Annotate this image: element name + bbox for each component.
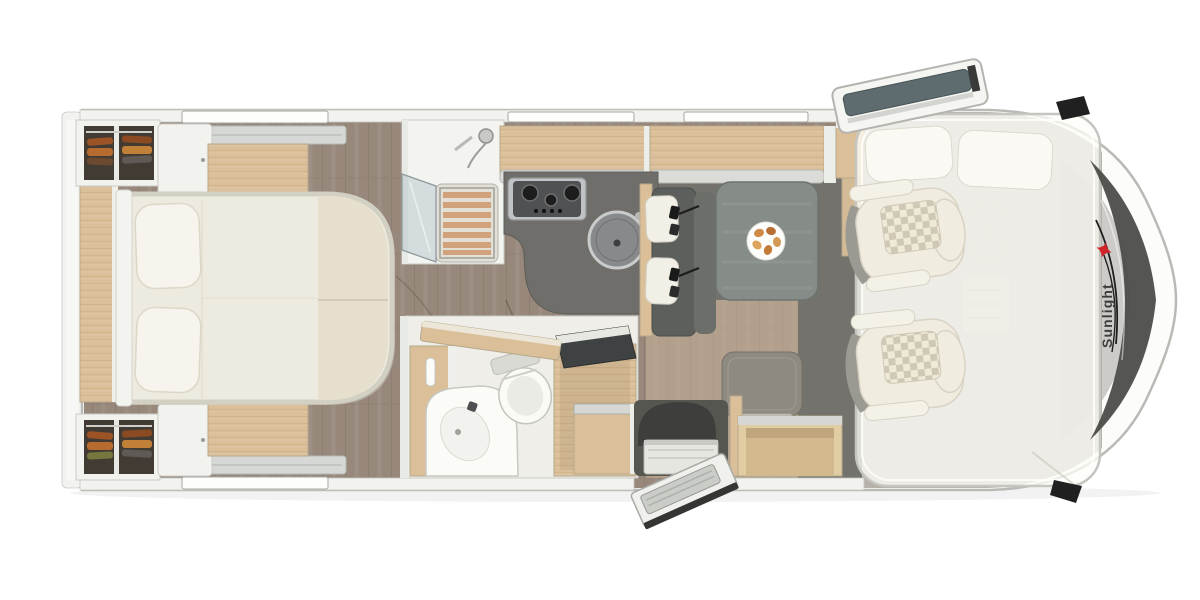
dinette-table bbox=[716, 182, 818, 300]
plate-with-croissants bbox=[747, 222, 785, 260]
shower-room bbox=[402, 120, 504, 264]
travel-bench bbox=[640, 184, 716, 336]
gas-hob bbox=[508, 178, 586, 220]
drop-down-bed-overlay bbox=[856, 114, 1100, 486]
bottom-wall-right bbox=[728, 478, 864, 490]
toilet-room bbox=[400, 316, 638, 478]
island-bed bbox=[116, 190, 395, 406]
bedroom-skylight-slot-top bbox=[182, 111, 328, 123]
bed-pillow bbox=[864, 125, 953, 183]
motorhome-floorplan: Sunlight bbox=[0, 0, 1200, 600]
wardrobe-top bbox=[76, 120, 160, 186]
pillow-top bbox=[135, 203, 202, 289]
bed-pillow bbox=[957, 130, 1054, 191]
wardrobe-bottom bbox=[76, 414, 160, 480]
bed-foot-section bbox=[318, 196, 388, 400]
brand-logo-text: Sunlight bbox=[1099, 283, 1115, 348]
shower-tray bbox=[436, 184, 498, 262]
bedroom-skylight-slot-bottom bbox=[182, 477, 328, 489]
step-stool bbox=[574, 404, 638, 474]
pillow-bottom bbox=[135, 307, 202, 393]
bottom-wall-left bbox=[80, 478, 634, 490]
headboard bbox=[116, 190, 132, 406]
dinette-window-slot bbox=[684, 112, 808, 122]
kitchen-window-slot bbox=[508, 112, 634, 122]
shower-glass-door bbox=[402, 174, 436, 262]
towel-rail bbox=[426, 358, 435, 386]
